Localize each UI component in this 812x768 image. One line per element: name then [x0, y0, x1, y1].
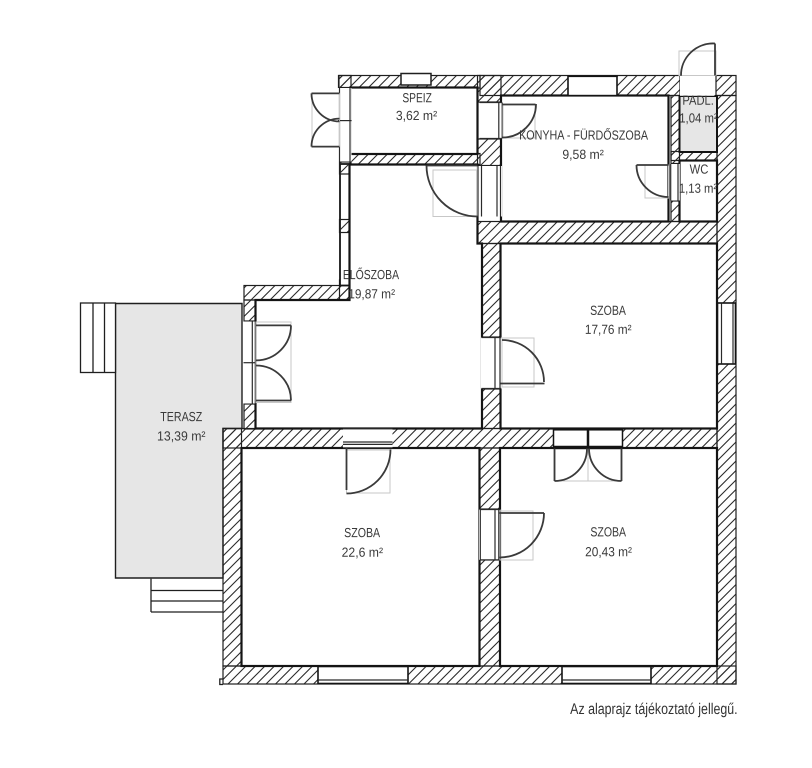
- svg-text:3,62 m²: 3,62 m²: [396, 108, 438, 123]
- svg-text:20,43 m²: 20,43 m²: [585, 544, 632, 559]
- svg-text:1,04 m²: 1,04 m²: [679, 110, 718, 125]
- svg-text:WC: WC: [690, 162, 709, 177]
- svg-text:13,39 m²: 13,39 m²: [157, 429, 206, 444]
- svg-text:19,87 m²: 19,87 m²: [348, 286, 395, 301]
- svg-text:ELŐSZOBA: ELŐSZOBA: [343, 267, 399, 282]
- svg-text:TERASZ: TERASZ: [160, 409, 202, 424]
- svg-text:1,13 m²: 1,13 m²: [679, 181, 718, 196]
- svg-text:9,58 m²: 9,58 m²: [562, 147, 604, 162]
- svg-text:17,76 m²: 17,76 m²: [585, 322, 632, 337]
- svg-text:KONYHA - FÜRDŐSZOBA: KONYHA - FÜRDŐSZOBA: [519, 128, 648, 143]
- svg-text:PADL.: PADL.: [682, 93, 713, 108]
- svg-text:SZOBA: SZOBA: [590, 524, 626, 539]
- svg-text:SZOBA: SZOBA: [344, 525, 380, 540]
- svg-text:Az alaprajz tájékoztató jelleg: Az alaprajz tájékoztató jellegű.: [570, 701, 737, 718]
- svg-text:22,6 m²: 22,6 m²: [342, 545, 384, 560]
- svg-text:SPEIZ: SPEIZ: [402, 90, 432, 105]
- svg-text:SZOBA: SZOBA: [590, 303, 626, 318]
